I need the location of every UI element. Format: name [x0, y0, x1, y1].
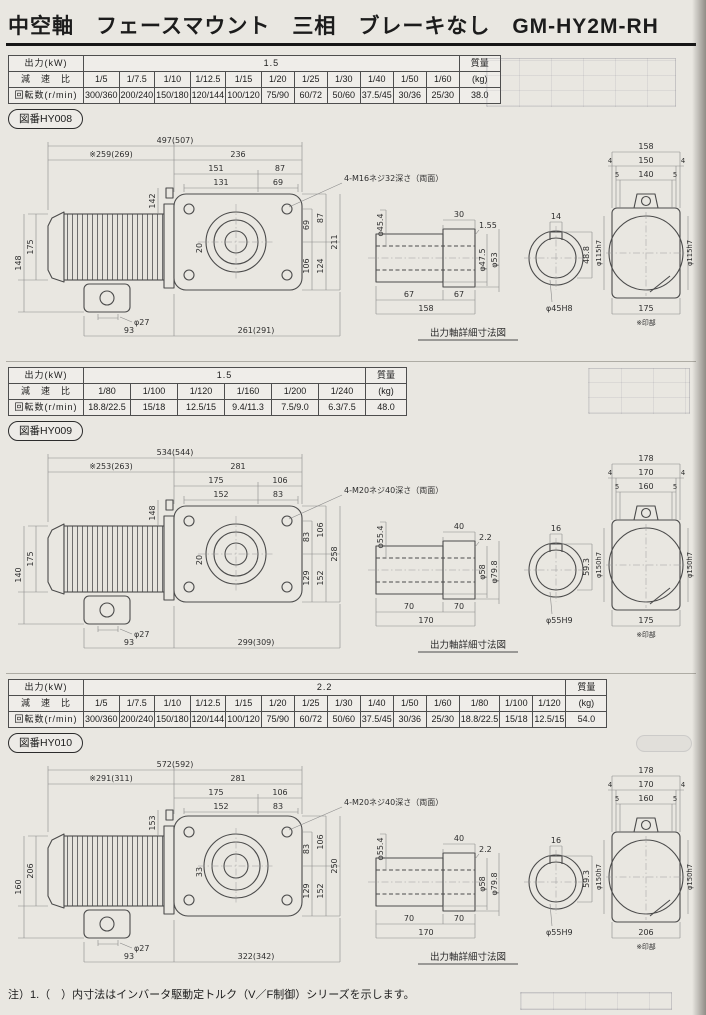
gear-case	[174, 506, 302, 602]
section-hy009: 出力(kW) 1.5 質量 減 速 比 1/80 1/100 1/120 1/1…	[6, 361, 696, 667]
dim-label: 206	[26, 863, 35, 878]
dim-label: 129	[302, 883, 311, 898]
speed-cell: 18.8/22.5	[84, 400, 131, 416]
dim-label: 175	[638, 304, 653, 313]
ratio-cell: 1/20	[261, 696, 294, 712]
mass-unit: (kg)	[366, 384, 407, 400]
dim-label: 124	[316, 258, 325, 273]
dim-label: 20	[195, 555, 204, 565]
dim-label: 40	[454, 834, 464, 843]
ratio-cell: 1/240	[319, 384, 366, 400]
ratio-cell: 1/10	[155, 696, 191, 712]
motor-body	[64, 526, 164, 592]
dim-label: 1.55	[479, 221, 497, 230]
speed-cell: 120/144	[190, 712, 226, 728]
dim-label: 5	[673, 483, 677, 491]
dim-label: 20	[195, 243, 204, 253]
dim-label: φ55H9	[546, 928, 573, 937]
ratio-cell: 1/15	[226, 696, 262, 712]
dim-label: 151	[208, 164, 223, 173]
dim-label: φ115h7	[686, 240, 694, 266]
dim-label: 170	[638, 468, 653, 477]
page-title: 中空軸 フェースマウント 三相 ブレーキなし GM-HY2M-RH	[8, 10, 696, 40]
spec-table-hy008: 出力(kW) 1.5 質量 減 速 比 1/5 1/7.5 1/10 1/12.…	[8, 55, 501, 104]
screw-note: 4-M20ネジ40深さ（両面）	[344, 798, 443, 807]
dim-label: 236	[230, 150, 245, 159]
side-view: 178 4 170 4 5 160 5 φ150h7 φ150h7 206 ※印…	[595, 766, 694, 951]
dim-label: 170	[638, 780, 653, 789]
dim-label: 4	[681, 157, 685, 165]
speed-cell: 37.5/45	[360, 712, 393, 728]
dim-label: 4	[608, 157, 612, 165]
dim-label: 67	[454, 290, 464, 299]
shaft-detail-view: 30 1.55 φ45.4 φ47.5 φ53 67 67 158 14 48.…	[368, 210, 592, 340]
dim-label: 67	[404, 290, 414, 299]
dim-label: 261(291)	[238, 326, 275, 335]
drawing-caption: 出力軸詳細寸法図	[430, 951, 506, 963]
dim-label: 70	[454, 914, 464, 923]
screw-note: 4-M16ネジ32深さ（両面）	[344, 174, 443, 183]
table-row: 出力(kW) 1.5 質量	[9, 368, 407, 384]
section-hy008: 出力(kW) 1.5 質量 減 速 比 1/5 1/7.5 1/10 1/12.…	[6, 55, 696, 355]
dim-label: 175	[638, 616, 653, 625]
ratio-cell: 1/15	[226, 72, 262, 88]
drawing-caption: 出力軸詳細寸法図	[430, 327, 506, 339]
dim-label: 142	[148, 193, 157, 208]
dim-label: 4	[608, 469, 612, 477]
ratio-row-label: 減 速 比	[9, 72, 84, 88]
dim-label: 160	[638, 794, 653, 803]
figure-number-badge: 図番HY009	[8, 421, 83, 441]
dim-label: ※291(311)	[89, 774, 132, 783]
motor-endcap	[48, 212, 64, 282]
table-row: 出力(kW) 1.5 質量	[9, 56, 501, 72]
dimension-drawing-hy009: 534(544) ※253(263) 281 175 106 152 83 17…	[6, 442, 696, 667]
ratio-cell: 1/25	[294, 696, 327, 712]
dim-label: 59.3	[582, 558, 591, 576]
speed-cell: 50/60	[327, 88, 360, 104]
dim-label: 30	[454, 210, 464, 219]
speed-row-label: 回転数(r/min)	[9, 88, 84, 104]
dim-label: 5	[615, 171, 619, 179]
dim-label: ※253(263)	[89, 462, 132, 471]
dim-label: 175	[208, 788, 223, 797]
dim-label: 175	[208, 476, 223, 485]
figure-number: 図番HY010	[19, 737, 72, 749]
lifting-lug	[166, 810, 173, 820]
dim-label: φ55.4	[376, 525, 385, 548]
side-view: 158 4 150 4 5 140 5 φ115h7 φ115h7 175 ※印…	[595, 142, 694, 327]
motor-flange	[164, 204, 174, 288]
terminal-box	[84, 596, 130, 624]
output-row-label: 出力(kW)	[9, 56, 84, 72]
ratio-cell: 1/5	[84, 696, 120, 712]
dimension-drawing-hy010: 572(592) ※291(311) 281 175 106 152 83 20…	[6, 754, 696, 979]
speed-cell: 120/144	[190, 88, 226, 104]
dim-label: 131	[213, 178, 228, 187]
motor-flange	[164, 826, 174, 914]
dim-label: 69	[302, 220, 311, 230]
dim-label: ※259(269)	[89, 150, 132, 159]
output-value: 1.5	[84, 368, 366, 384]
dim-label: 211	[330, 234, 339, 249]
dim-label: 140	[638, 170, 653, 179]
dim-label: 160	[14, 879, 23, 894]
figure-number-badge: 図番HY008	[8, 109, 83, 129]
speed-cell: 7.5/9.0	[272, 400, 319, 416]
dim-label: 70	[404, 602, 414, 611]
mass-value: 48.0	[366, 400, 407, 416]
speed-cell: 12.5/15	[178, 400, 225, 416]
speed-cell: 300/360	[84, 88, 120, 104]
motor-flange	[164, 516, 174, 600]
speed-cell: 30/36	[393, 88, 426, 104]
dim-label: φ55H9	[546, 616, 573, 625]
dim-label: 175	[26, 551, 35, 566]
gear-case	[174, 816, 302, 916]
figure-number: 図番HY008	[19, 113, 72, 125]
speed-cell: 25/30	[426, 88, 459, 104]
ratio-cell: 1/25	[294, 72, 327, 88]
speed-cell: 75/90	[261, 712, 294, 728]
dim-label: φ150h7	[686, 864, 694, 890]
dim-label: 152	[213, 490, 228, 499]
dim-label: 83	[273, 490, 283, 499]
spec-table-hy010: 出力(kW) 2.2 質量 減 速 比 1/5 1/7.5 1/10 1/12.…	[8, 679, 607, 728]
dim-label: 87	[275, 164, 285, 173]
dim-label: 4	[681, 469, 685, 477]
ratio-cell: 1/50	[393, 72, 426, 88]
dim-label: ※印部	[636, 318, 655, 327]
dim-label: φ79.8	[490, 560, 499, 583]
output-value: 1.5	[84, 56, 460, 72]
dim-label: 5	[673, 795, 677, 803]
ratio-cell: 1/120	[178, 384, 225, 400]
dim-label: 175	[26, 239, 35, 254]
ratio-cell: 1/12.5	[190, 72, 226, 88]
footnote: 注）1.（ ）内寸法はインバータ駆動定トルク（V／F制御）シリーズを示します。	[8, 986, 696, 1002]
dim-label: 572(592)	[157, 760, 194, 769]
table-row: 回転数(r/min) 300/360 200/240 150/180 120/1…	[9, 712, 607, 728]
ratio-cell: 1/10	[155, 72, 191, 88]
dim-label: 153	[148, 815, 157, 830]
dim-label: 148	[148, 505, 157, 520]
speed-cell: 75/90	[261, 88, 294, 104]
dim-label: 93	[124, 638, 134, 647]
ratio-cell: 1/7.5	[119, 72, 155, 88]
figure-number: 図番HY009	[19, 425, 72, 437]
table-row: 減 速 比 1/80 1/100 1/120 1/160 1/200 1/240…	[9, 384, 407, 400]
dim-label: 178	[638, 766, 653, 775]
spec-table-hy009: 出力(kW) 1.5 質量 減 速 比 1/80 1/100 1/120 1/1…	[8, 367, 407, 416]
dim-label: 70	[454, 602, 464, 611]
shaft-detail-view: 40 2.2 φ55.4 φ58 φ79.8 70 70 170 16 59.3…	[368, 834, 592, 964]
dim-label: φ58	[478, 564, 487, 579]
dim-label: 87	[316, 213, 325, 223]
terminal-box	[84, 284, 130, 312]
dim-label: 281	[230, 462, 245, 471]
motor-endcap	[48, 834, 64, 908]
dim-label: φ27	[134, 944, 149, 953]
dim-label: 160	[638, 482, 653, 491]
dim-label: φ55.4	[376, 837, 385, 860]
dim-label: 170	[418, 928, 433, 937]
dim-label: 14	[551, 212, 561, 221]
mass-label: 質量	[366, 368, 407, 384]
dim-label: 93	[124, 326, 134, 335]
speed-cell: 100/120	[226, 712, 262, 728]
gear-case	[174, 194, 302, 290]
ratio-cell: 1/200	[272, 384, 319, 400]
mass-value: 38.0	[459, 88, 500, 104]
dim-label: 150	[638, 156, 653, 165]
dim-label: φ53	[490, 252, 499, 267]
dim-label: 48.8	[582, 246, 591, 264]
dimension-drawing-hy008: 497(507) ※259(269) 236 151 87 131 69 175…	[6, 130, 696, 355]
figure-number-badge: 図番HY010	[8, 733, 83, 753]
ratio-cell: 1/20	[261, 72, 294, 88]
table-row: 出力(kW) 2.2 質量	[9, 680, 607, 696]
dim-label: φ150h7	[595, 552, 603, 578]
speed-cell: 18.8/22.5	[459, 712, 500, 728]
dim-label: 534(544)	[157, 448, 194, 457]
dim-label: 2.2	[479, 533, 492, 542]
dim-label: 5	[615, 483, 619, 491]
mass-label: 質量	[459, 56, 500, 72]
dim-label: ※印部	[636, 942, 655, 951]
dim-label: φ58	[478, 876, 487, 891]
ratio-row-label: 減 速 比	[9, 696, 84, 712]
speed-cell: 200/240	[119, 88, 155, 104]
dim-label: 206	[638, 928, 653, 937]
dim-label: 83	[302, 844, 311, 854]
table-row: 減 速 比 1/5 1/7.5 1/10 1/12.5 1/15 1/20 1/…	[9, 72, 501, 88]
dim-label: 33	[195, 867, 204, 877]
dim-label: φ150h7	[686, 552, 694, 578]
dim-label: 4	[681, 781, 685, 789]
speed-cell: 30/36	[393, 712, 426, 728]
dim-label: 59.3	[582, 870, 591, 888]
dim-label: 250	[330, 858, 339, 873]
mass-unit: (kg)	[459, 72, 500, 88]
ratio-cell: 1/12.5	[190, 696, 226, 712]
dim-label: 140	[14, 567, 23, 582]
dim-label: 83	[302, 532, 311, 542]
table-row: 減 速 比 1/5 1/7.5 1/10 1/12.5 1/15 1/20 1/…	[9, 696, 607, 712]
ratio-cell: 1/50	[393, 696, 426, 712]
speed-cell: 150/180	[155, 88, 191, 104]
side-view: 178 4 170 4 5 160 5 φ150h7 φ150h7 175 ※印…	[595, 454, 694, 639]
motor-endcap	[48, 524, 64, 594]
dim-label: 16	[551, 524, 561, 533]
dim-label: 148	[14, 255, 23, 270]
ratio-cell: 1/160	[225, 384, 272, 400]
dim-label: 299(309)	[238, 638, 275, 647]
ratio-cell: 1/100	[131, 384, 178, 400]
lifting-lug	[166, 500, 173, 510]
lifting-lug	[166, 188, 173, 198]
ratio-cell: 1/30	[327, 696, 360, 712]
dim-label: 70	[404, 914, 414, 923]
dim-label: 158	[418, 304, 433, 313]
dim-label: 497(507)	[157, 136, 194, 145]
ratio-cell: 1/40	[360, 72, 393, 88]
dim-label: 106	[302, 258, 311, 273]
output-row-label: 出力(kW)	[9, 680, 84, 696]
ratio-cell: 1/60	[426, 72, 459, 88]
ratio-cell: 1/7.5	[119, 696, 155, 712]
dim-label: 152	[316, 883, 325, 898]
speed-cell: 9.4/11.3	[225, 400, 272, 416]
dim-label: 152	[213, 802, 228, 811]
mass-unit: (kg)	[566, 696, 607, 712]
speed-cell: 100/120	[226, 88, 262, 104]
output-row-label: 出力(kW)	[9, 368, 84, 384]
speed-cell: 25/30	[426, 712, 459, 728]
dim-label: 106	[316, 522, 325, 537]
dim-label: 2.2	[479, 845, 492, 854]
dim-label: 106	[316, 834, 325, 849]
dim-label: 129	[302, 570, 311, 585]
motor-body	[64, 214, 164, 280]
dim-label: 16	[551, 836, 561, 845]
table-row: 回転数(r/min) 18.8/22.5 15/18 12.5/15 9.4/1…	[9, 400, 407, 416]
ratio-cell: 1/30	[327, 72, 360, 88]
shaft-detail-view: 40 2.2 φ55.4 φ58 φ79.8 70 70 170 16 59.3…	[368, 522, 592, 652]
dim-label: ※印部	[636, 630, 655, 639]
output-value: 2.2	[84, 680, 566, 696]
speed-cell: 200/240	[119, 712, 155, 728]
speed-cell: 15/18	[500, 712, 533, 728]
ratio-cell: 1/5	[84, 72, 120, 88]
page: 中空軸 フェースマウント 三相 ブレーキなし GM-HY2M-RH 出力(kW)…	[0, 0, 706, 1002]
dim-label: φ47.5	[478, 248, 487, 271]
ratio-cell: 1/60	[426, 696, 459, 712]
dim-label: 106	[272, 476, 287, 485]
speed-cell: 300/360	[84, 712, 120, 728]
speed-cell: 12.5/15	[533, 712, 566, 728]
ratio-cell: 1/80	[84, 384, 131, 400]
speed-cell: 50/60	[327, 712, 360, 728]
dim-label: 322(342)	[238, 952, 275, 961]
motor-body	[64, 836, 164, 906]
mass-value: 54.0	[566, 712, 607, 728]
dim-label: 4	[608, 781, 612, 789]
ratio-cell: 1/80	[459, 696, 500, 712]
table-row: 回転数(r/min) 300/360 200/240 150/180 120/1…	[9, 88, 501, 104]
dim-label: 83	[273, 802, 283, 811]
ratio-row-label: 減 速 比	[9, 384, 84, 400]
dim-label: φ150h7	[595, 864, 603, 890]
screw-note: 4-M20ネジ40深さ（両面）	[344, 486, 443, 495]
dim-label: 152	[316, 570, 325, 585]
dim-label: 106	[272, 788, 287, 797]
dim-label: φ27	[134, 630, 149, 639]
section-hy010: 出力(kW) 2.2 質量 減 速 比 1/5 1/7.5 1/10 1/12.…	[6, 673, 696, 979]
dim-label: 258	[330, 546, 339, 561]
ratio-cell: 1/120	[533, 696, 566, 712]
speed-row-label: 回転数(r/min)	[9, 712, 84, 728]
dim-label: φ45H8	[546, 304, 573, 313]
dim-label: 69	[273, 178, 283, 187]
mass-label: 質量	[566, 680, 607, 696]
dim-label: 158	[638, 142, 653, 151]
dim-label: 40	[454, 522, 464, 531]
ratio-cell: 1/40	[360, 696, 393, 712]
ratio-cell: 1/100	[500, 696, 533, 712]
speed-cell: 60/72	[294, 88, 327, 104]
speed-cell: 37.5/45	[360, 88, 393, 104]
dim-label: 5	[615, 795, 619, 803]
speed-cell: 150/180	[155, 712, 191, 728]
dim-label: φ27	[134, 318, 149, 327]
dim-label: φ45.4	[376, 213, 385, 236]
dim-label: φ79.8	[490, 872, 499, 895]
speed-row-label: 回転数(r/min)	[9, 400, 84, 416]
dim-label: 281	[230, 774, 245, 783]
speed-cell: 60/72	[294, 712, 327, 728]
speed-cell: 6.3/7.5	[319, 400, 366, 416]
terminal-box	[84, 910, 130, 938]
dim-label: 178	[638, 454, 653, 463]
dim-label: 170	[418, 616, 433, 625]
title-rule	[6, 43, 696, 46]
speed-cell: 15/18	[131, 400, 178, 416]
dim-label: 93	[124, 952, 134, 961]
drawing-caption: 出力軸詳細寸法図	[430, 639, 506, 651]
dim-label: 5	[673, 171, 677, 179]
dim-label: φ115h7	[595, 240, 603, 266]
